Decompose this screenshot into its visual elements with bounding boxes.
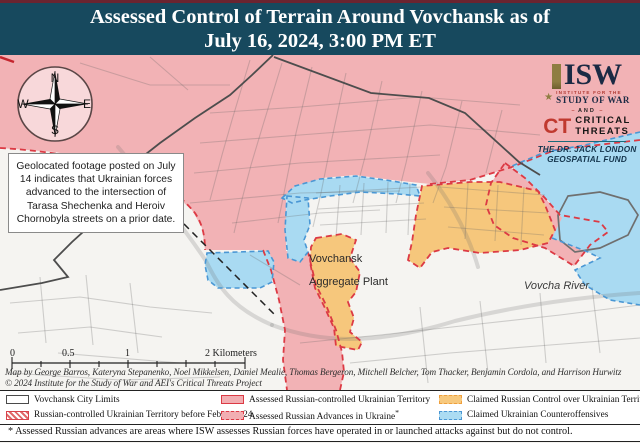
- compass-west-label: W: [17, 97, 29, 111]
- scale-1: 1: [125, 348, 130, 359]
- compass-rose: N E S W: [17, 67, 92, 141]
- isw-acronym: ISW: [564, 61, 622, 89]
- ct-acronym: CT: [543, 117, 571, 137]
- scale-2km: 2 Kilometers: [205, 348, 257, 359]
- prewar-territory-swatch: [6, 411, 29, 420]
- dash-icon-left: –: [572, 108, 575, 114]
- dash-icon-right: –: [599, 108, 602, 114]
- annotation-box: Geolocated footage posted on July 14 ind…: [8, 153, 184, 233]
- compass-south-label: S: [51, 123, 59, 137]
- advances-asterisk: *: [395, 408, 399, 417]
- credits-line1: Map by George Barros, Kateryna Stepanenk…: [5, 367, 638, 378]
- divider: [548, 141, 626, 142]
- legend-bar: Vovchansk City Limits Russian-controlled…: [0, 390, 640, 425]
- compass-east-label: E: [83, 97, 91, 111]
- legend-item-city-limits: Vovchansk City Limits: [6, 395, 221, 405]
- and-separator: – AND –: [537, 108, 637, 114]
- assessed-russian-controlled-swatch: [221, 395, 244, 404]
- map-area: Vovchansk Aggregate Plant Vovcha River N…: [0, 55, 640, 390]
- aggregate-plant-label-line2: Aggregate Plant: [309, 276, 388, 288]
- legend-item-claimed-russian-control: Claimed Russian Control over Ukrainian T…: [439, 395, 640, 405]
- map-credits: Map by George Barros, Kateryna Stepanenk…: [5, 367, 638, 388]
- claimed-russian-control-swatch: [439, 395, 462, 404]
- isw-column-icon: [552, 64, 561, 89]
- isw-study-of-war-text: STUDY OF WAR: [556, 95, 630, 105]
- ct-critical-text: CRITICAL: [575, 116, 631, 127]
- legend-item-prewar-territory: Russian-controlled Ukrainian Territory b…: [6, 410, 221, 420]
- legend-item-assessed-russian-advances: Assessed Russian Advances in Ukraine*: [221, 408, 439, 422]
- logo-block: ISW ★ INSTITUTE FOR THE STUDY OF WAR – A…: [537, 61, 637, 165]
- map-title-line2: July 16, 2024, 3:00 PM ET: [0, 29, 640, 53]
- isw-subtitle: ★ INSTITUTE FOR THE STUDY OF WAR: [537, 90, 637, 105]
- legend-item-assessed-russian-controlled: Assessed Russian-controlled Ukrainian Te…: [221, 395, 439, 405]
- isw-map-screenshot: Assessed Control of Terrain Around Vovch…: [0, 0, 640, 443]
- legend-item-claimed-ukrainian-counteroffensives: Claimed Ukrainian Counteroffensives: [439, 410, 640, 420]
- aggregate-plant-label-line1: Vovchansk: [309, 253, 363, 265]
- star-icon: ★: [544, 93, 553, 103]
- isw-logo: ISW: [537, 61, 637, 89]
- title-bar: Assessed Control of Terrain Around Vovch…: [0, 0, 640, 55]
- ct-threats-text: THREATS: [575, 127, 631, 138]
- footnote: * Assessed Russian advances are areas wh…: [0, 425, 640, 442]
- claimed-ukrainian-counteroffensives-swatch: [439, 411, 462, 420]
- scale-05: 0.5: [62, 348, 75, 359]
- river-label: Vovcha River: [524, 280, 590, 292]
- critical-threats-logo: CT CRITICAL THREATS: [537, 116, 637, 137]
- credits-line2: © 2024 Institute for the Study of War an…: [5, 378, 638, 389]
- assessed-russian-advances-swatch: [221, 411, 244, 420]
- scale-0: 0: [10, 348, 15, 359]
- city-limits-swatch: [6, 395, 29, 404]
- map-title-line1: Assessed Control of Terrain Around Vovch…: [0, 3, 640, 29]
- geospatial-fund-text: THE DR. JACK LONDON GEOSPATIAL FUND: [537, 145, 637, 165]
- compass-north-label: N: [51, 71, 60, 85]
